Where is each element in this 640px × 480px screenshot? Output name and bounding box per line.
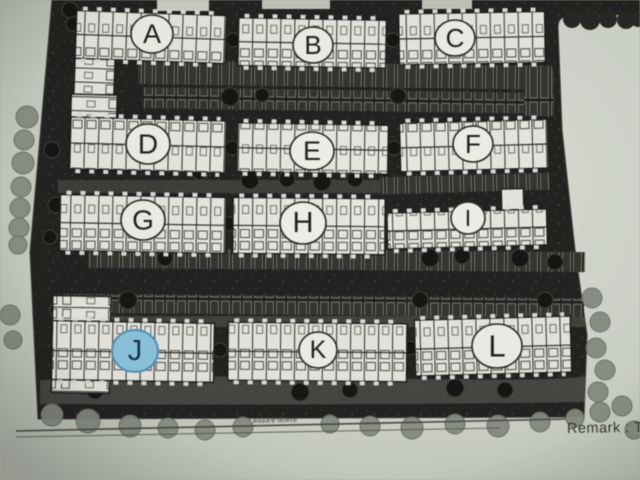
building-label-g: G: [132, 205, 154, 236]
building-label-a: A: [143, 19, 161, 49]
building-circle-c: C: [435, 20, 475, 56]
building-label-b: B: [304, 30, 321, 60]
building-circle-a: A: [131, 15, 173, 53]
building-label-c: C: [446, 23, 465, 53]
building-label-h: H: [293, 207, 314, 239]
building-label-k: K: [310, 336, 327, 364]
building-label-j: J: [128, 335, 143, 367]
building-circle-e: E: [290, 132, 334, 170]
building-circle-b: B: [293, 27, 333, 63]
site-plan-photo: A B C D E F G H: [0, 0, 640, 480]
building-circle-j-highlighted: J: [112, 330, 158, 372]
building-label-l: L: [488, 329, 505, 364]
building-circle-d: D: [126, 124, 170, 164]
building-circle-h: H: [280, 202, 326, 244]
remark-text: Remark : T: [567, 420, 640, 437]
building-circle-g: G: [121, 200, 165, 240]
building-label-i: I: [465, 205, 471, 231]
canal-caption: คลองเช่าที่เพรย: [253, 415, 297, 425]
building-label-f: F: [465, 129, 481, 159]
site-plan-drawing: A B C D E F G H: [0, 0, 640, 480]
building-circle-k: K: [299, 332, 337, 368]
building-circle-l: L: [472, 324, 522, 368]
building-label-e: E: [303, 136, 321, 166]
building-circle-f: F: [453, 126, 493, 162]
building-circle-i: I: [451, 202, 485, 234]
building-label-d: D: [138, 129, 158, 160]
